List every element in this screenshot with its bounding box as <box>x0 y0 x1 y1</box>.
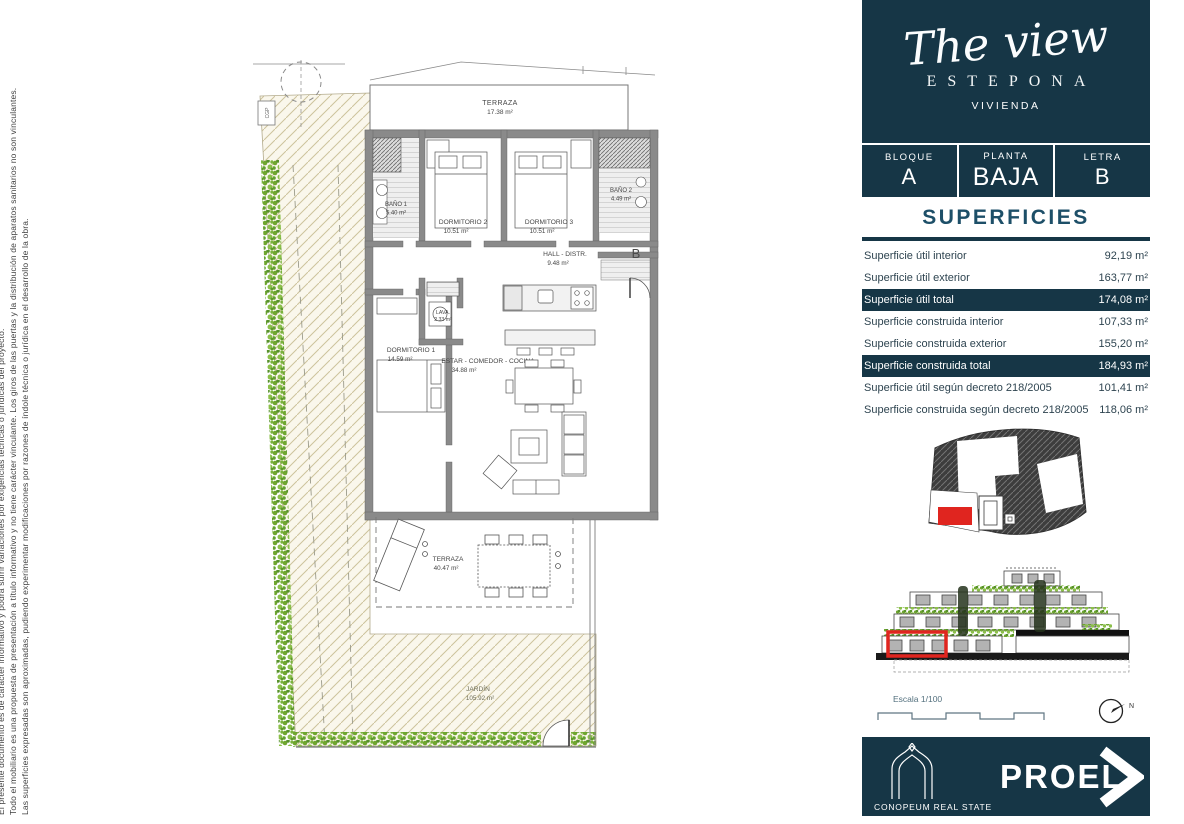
room-label: HALL - DISTR. <box>543 251 587 258</box>
hedge-bottom-right <box>571 732 596 747</box>
bloque-value: A <box>901 164 917 190</box>
room-area: 10.51 m² <box>530 228 555 235</box>
room-label: DORMITORIO 3 <box>525 219 574 226</box>
north-label: N <box>1129 703 1134 710</box>
row-value: 155,20 m² <box>1098 338 1148 350</box>
room-label: DORMITORIO 2 <box>439 219 488 226</box>
row-label: Superficie construida exterior <box>864 338 1006 350</box>
letra-label: LETRA <box>1084 152 1122 163</box>
room-area: 2.33 m² <box>434 317 452 323</box>
room-area: 17.38 m² <box>487 109 513 116</box>
brand-type: VIVIENDA <box>862 100 1150 112</box>
row-label: Superficie construida total <box>864 360 991 372</box>
highlighted-unit <box>938 507 972 525</box>
cgp-label: CGP <box>265 107 271 119</box>
row-label: Superficie útil interior <box>864 250 967 262</box>
room-area: 10.51 m² <box>444 228 469 235</box>
row-value: 101,41 m² <box>1098 382 1148 394</box>
unit-bloque: BLOQUE A <box>862 145 957 197</box>
disclaimer-line-3: Las superficies expresadas son aproximad… <box>20 218 30 815</box>
room-area: 105.92 m² <box>466 695 494 702</box>
brand-script-logo: The view <box>861 6 1152 79</box>
cgp-box: CGP <box>258 101 275 125</box>
row-value: 118,06 m² <box>1099 404 1148 416</box>
arch-icon <box>882 743 942 801</box>
row-value: 184,93 m² <box>1098 360 1148 372</box>
superficies-title: SUPERFICIES <box>862 206 1150 230</box>
row-label: Superficie útil según decreto 218/2005 <box>864 382 1052 394</box>
superficies-table: Superficie útil interior 92,19 m² Superf… <box>862 245 1150 421</box>
table-row: Superficie útil interior 92,19 m² <box>862 245 1150 267</box>
table-row: Superficie construida exterior 155,20 m² <box>862 333 1150 355</box>
room-label: LAVA. <box>436 310 450 316</box>
room-label: TERRAZA <box>482 100 517 107</box>
row-label: Superficie útil total <box>864 294 954 306</box>
row-value: 107,33 m² <box>1098 316 1148 328</box>
room-label: BAÑO 1 <box>385 201 408 208</box>
room-bano1: BAÑO 1 5.40 m² <box>373 138 419 238</box>
room-area: 4.49 m² <box>611 197 631 203</box>
row-value: 163,77 m² <box>1098 272 1148 284</box>
brand-card: The view ESTEPONA VIVIENDA BLOQUE A PLAN… <box>862 0 1150 197</box>
table-row-highlight: Superficie construida total 184,93 m² <box>862 355 1150 377</box>
room-label: TERRAZA <box>433 556 464 563</box>
room-area: 14.59 m² <box>388 356 413 363</box>
superficies-section: SUPERFICIES Superficie útil interior 92,… <box>862 206 1150 421</box>
room-bano2: BAÑO 2 4.49 m² <box>599 138 650 233</box>
table-row: Superficie construida interior 107,33 m² <box>862 311 1150 333</box>
room-area: 40.47 m² <box>434 565 459 572</box>
company-name: CONOPEUM REAL STATE <box>874 802 992 812</box>
room-area: 34.88 m² <box>452 367 477 374</box>
room-terraza-top: TERRAZA 17.38 m² <box>370 85 628 130</box>
letra-value: B <box>1095 164 1111 190</box>
planta-value: BAJA <box>973 163 1040 192</box>
table-row-highlight: Superficie útil total 174,08 m² <box>862 289 1150 311</box>
room-label: BAÑO 2 <box>610 187 633 194</box>
unit-planta: PLANTA BAJA <box>957 145 1054 197</box>
scale-label: Escala 1/100 <box>893 694 942 704</box>
unit-row: BLOQUE A PLANTA BAJA LETRA B <box>862 143 1150 197</box>
row-value: 92,19 m² <box>1105 250 1148 262</box>
room-terraza-low: TERRAZA 40.47 m² <box>374 517 573 607</box>
building-elevation <box>866 556 1146 694</box>
hedge-bottom <box>293 732 541 747</box>
brochure-page: El presente documento es de carácter inf… <box>0 0 1184 824</box>
site-key-plan <box>905 414 1105 549</box>
room-area: 5.40 m² <box>386 211 406 217</box>
row-label: Superficie construida interior <box>864 316 1003 328</box>
room-label: JARDÍN <box>466 684 490 693</box>
room-area: 9.48 m² <box>547 260 568 267</box>
planta-label: PLANTA <box>983 151 1028 162</box>
north-arrow-icon: N <box>1096 694 1142 728</box>
room-dorm2: DORMITORIO 2 10.51 m² <box>427 140 487 235</box>
table-row: Superficie útil según decreto 218/2005 1… <box>862 377 1150 399</box>
footer-card: CONOPEUM REAL STATE PROEL <box>862 737 1150 816</box>
table-row: Superficie útil exterior 163,77 m² <box>862 267 1150 289</box>
row-value: 174,08 m² <box>1098 294 1148 306</box>
disclaimer-line-1: El presente documento es de carácter inf… <box>0 329 6 815</box>
unit-letra: LETRA B <box>1053 145 1150 197</box>
row-label: Superficie útil exterior <box>864 272 970 284</box>
superficies-rule <box>862 237 1150 241</box>
disclaimer-line-2: Todo el mobiliario es una propuesta de p… <box>8 88 18 815</box>
room-label: ESTAR - COMEDOR - COCINA <box>441 358 535 365</box>
floor-plan: CGP TERRAZA 17.38 m² <box>253 30 663 775</box>
bloque-label: BLOQUE <box>885 152 934 163</box>
scale-bar <box>876 706 1048 724</box>
entrance-letter: B <box>632 246 641 261</box>
room-label: DORMITORIO 1 <box>387 347 436 354</box>
chevron-right-icon <box>1098 746 1144 808</box>
